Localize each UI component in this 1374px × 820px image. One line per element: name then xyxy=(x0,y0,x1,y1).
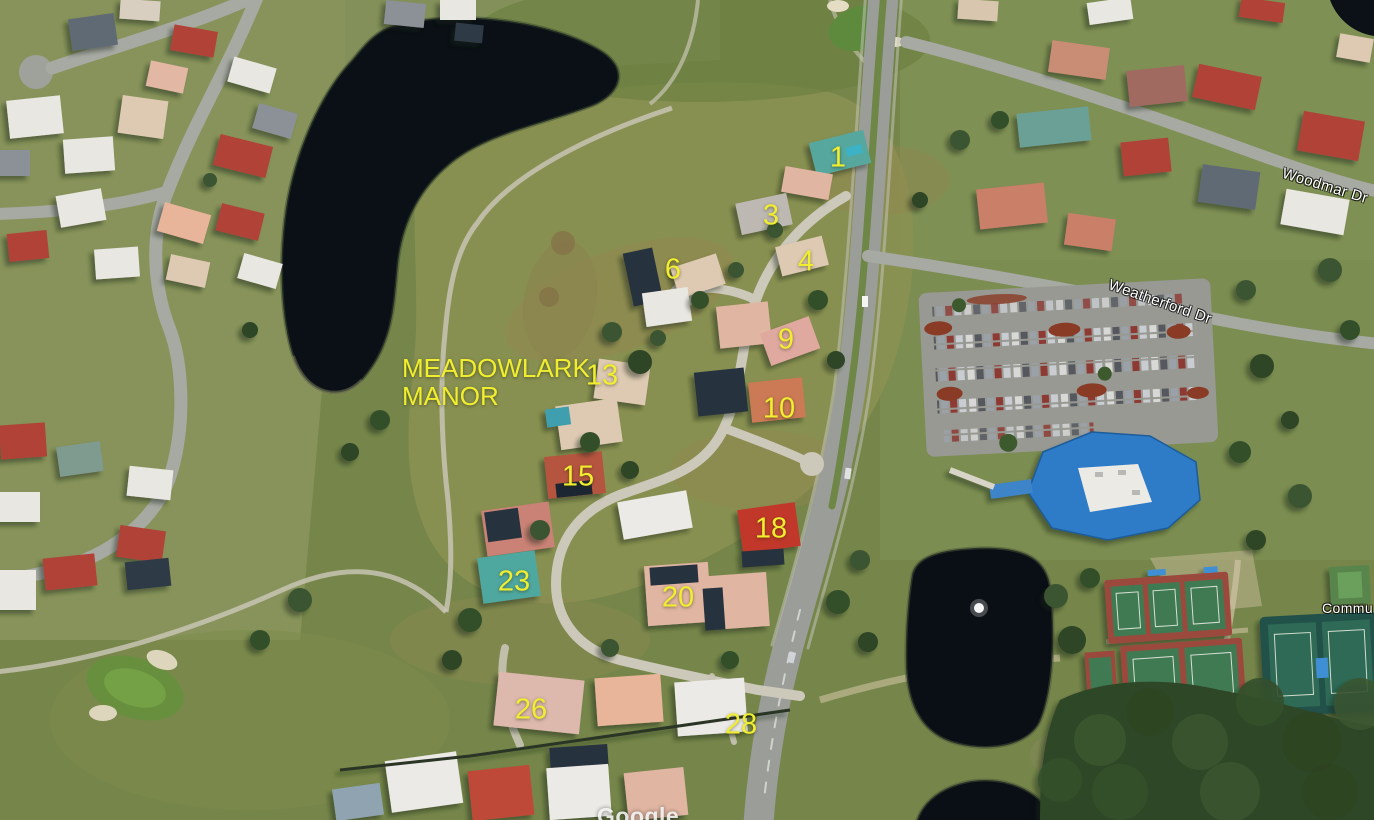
street-label-community: Commu xyxy=(1322,600,1373,616)
lot-marker-6: 6 xyxy=(665,254,681,287)
lot-marker-4: 4 xyxy=(798,246,814,279)
lot-marker-3: 3 xyxy=(763,200,779,233)
lot-marker-28: 28 xyxy=(725,709,757,742)
street-label-weatherford-dr: Weatherford Dr xyxy=(1106,276,1214,327)
lot-marker-1: 1 xyxy=(830,142,846,175)
google-watermark: Google xyxy=(597,803,679,820)
lot-marker-20: 20 xyxy=(662,582,694,615)
lot-marker-13: 13 xyxy=(586,360,618,393)
lot-marker-9: 9 xyxy=(778,324,794,357)
lot-marker-10: 10 xyxy=(763,393,795,426)
lot-marker-15: 15 xyxy=(562,461,594,494)
lot-marker-26: 26 xyxy=(515,694,547,727)
street-label-woodmar-dr: Woodmar Dr xyxy=(1280,165,1370,207)
satellite-map-viewport[interactable]: MEADOWLARK MANOR 1 3 4 6 9 13 10 15 18 2… xyxy=(0,0,1374,820)
label-overlay: MEADOWLARK MANOR 1 3 4 6 9 13 10 15 18 2… xyxy=(0,0,1374,820)
lot-marker-18: 18 xyxy=(755,513,787,546)
lot-marker-23: 23 xyxy=(498,566,530,599)
